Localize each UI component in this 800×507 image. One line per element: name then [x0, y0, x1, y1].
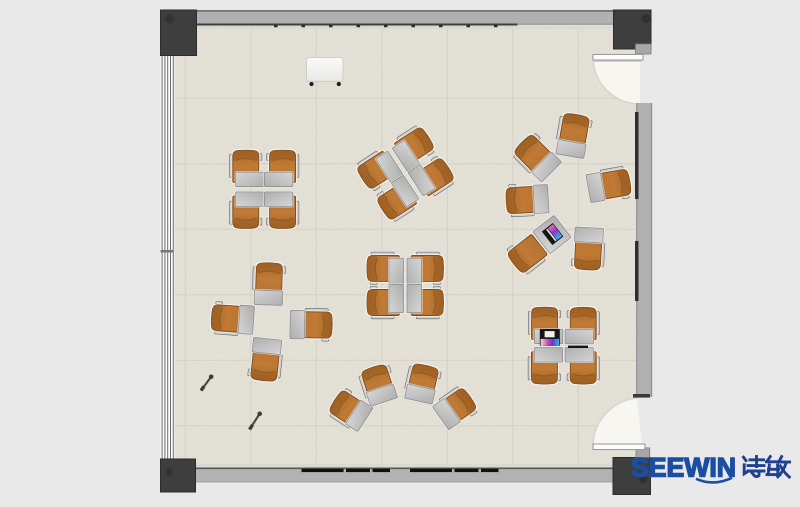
svg-text:SEEWIN: SEEWIN [631, 453, 736, 483]
